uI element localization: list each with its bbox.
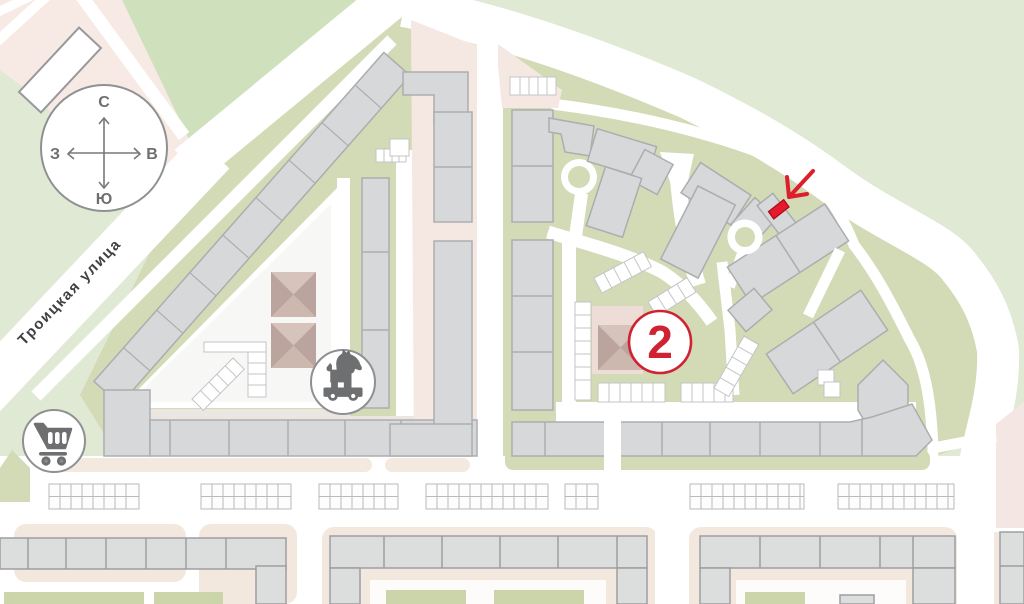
svg-text:С: С xyxy=(98,94,110,111)
svg-text:З: З xyxy=(50,146,60,163)
svg-text:2: 2 xyxy=(647,316,673,368)
svg-text:В: В xyxy=(146,146,158,163)
svg-text:Ю: Ю xyxy=(96,191,113,208)
